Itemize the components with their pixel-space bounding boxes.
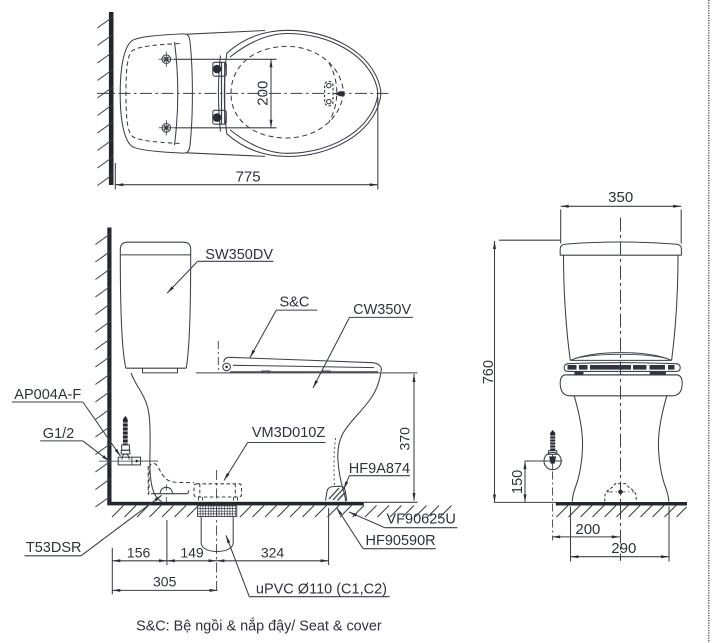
svg-text:SW350DV: SW350DV <box>205 247 273 263</box>
svg-text:AP004A-F: AP004A-F <box>14 387 81 403</box>
svg-text:760: 760 <box>481 360 497 384</box>
svg-text:156: 156 <box>127 544 151 560</box>
svg-text:VM3D010Z: VM3D010Z <box>252 425 325 441</box>
svg-text:350: 350 <box>608 189 633 206</box>
svg-text:200: 200 <box>254 81 271 106</box>
svg-text:T53DSR: T53DSR <box>26 540 82 556</box>
svg-text:G1/2: G1/2 <box>43 426 74 442</box>
svg-text:150: 150 <box>510 470 526 494</box>
svg-text:775: 775 <box>236 169 261 186</box>
svg-text:CW350V: CW350V <box>353 302 411 318</box>
svg-text:370: 370 <box>396 427 412 451</box>
svg-text:149: 149 <box>180 544 204 560</box>
svg-text:S&C: Bệ ngồi & nắp đậy/ Seat &: S&C: Bệ ngồi & nắp đậy/ Seat & cover <box>136 617 382 634</box>
svg-text:S&C: S&C <box>280 295 310 311</box>
svg-text:200: 200 <box>575 521 600 538</box>
svg-text:290: 290 <box>611 540 636 557</box>
svg-text:324: 324 <box>261 544 285 560</box>
svg-text:HF9A874: HF9A874 <box>349 461 410 477</box>
svg-text:HF90590R: HF90590R <box>366 533 436 549</box>
svg-text:305: 305 <box>153 573 177 589</box>
svg-text:VF90625U: VF90625U <box>387 511 456 527</box>
svg-text:uPVC Ø110 (C1,C2): uPVC Ø110 (C1,C2) <box>256 582 387 598</box>
